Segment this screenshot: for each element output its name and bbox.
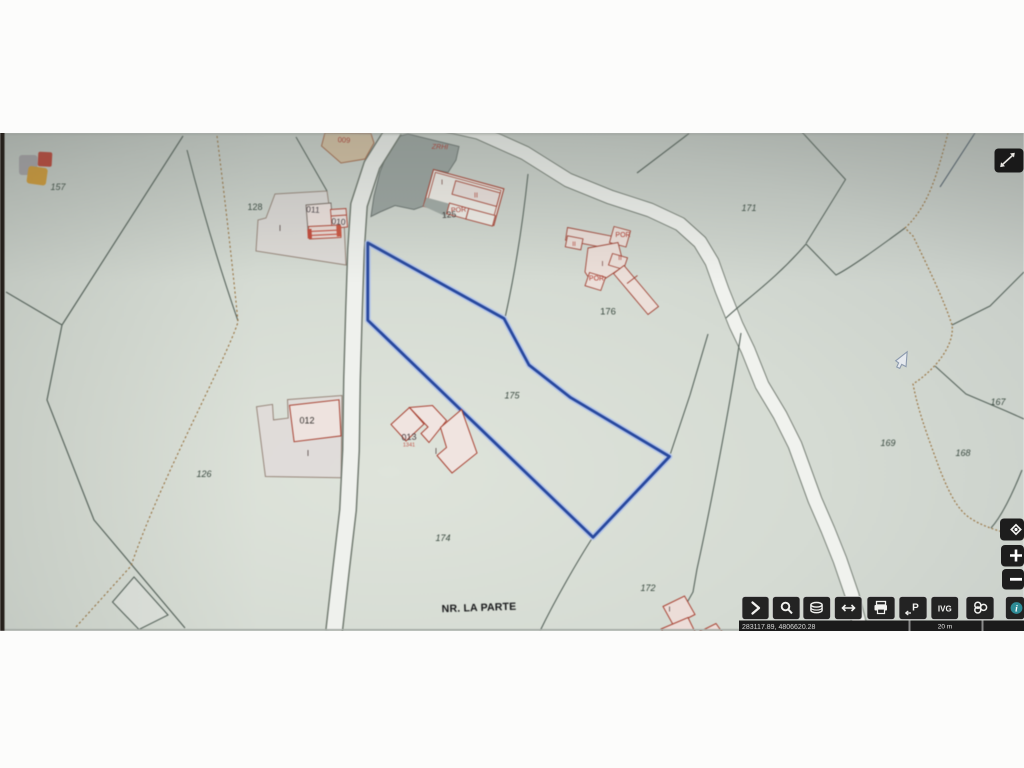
svg-text:175: 175	[504, 391, 520, 401]
svg-text:168: 168	[955, 448, 970, 458]
svg-text:169: 169	[880, 438, 895, 448]
svg-text:176: 176	[600, 307, 616, 318]
svg-text:174: 174	[435, 533, 450, 543]
svg-text:20 m: 20 m	[938, 624, 952, 631]
svg-text:IVG: IVG	[938, 605, 952, 614]
svg-text:012: 012	[299, 416, 314, 426]
svg-text:172: 172	[640, 583, 655, 593]
svg-text:P: P	[912, 603, 919, 614]
svg-text:167: 167	[990, 397, 1006, 407]
svg-text:i: i	[1015, 605, 1018, 615]
svg-text:I: I	[307, 449, 309, 458]
svg-text:013: 013	[401, 431, 417, 442]
svg-text:1341: 1341	[403, 443, 415, 449]
svg-text:I: I	[668, 605, 670, 614]
svg-text:283117.89, 4806620.28: 283117.89, 4806620.28	[742, 624, 816, 631]
svg-text:I: I	[435, 447, 437, 456]
